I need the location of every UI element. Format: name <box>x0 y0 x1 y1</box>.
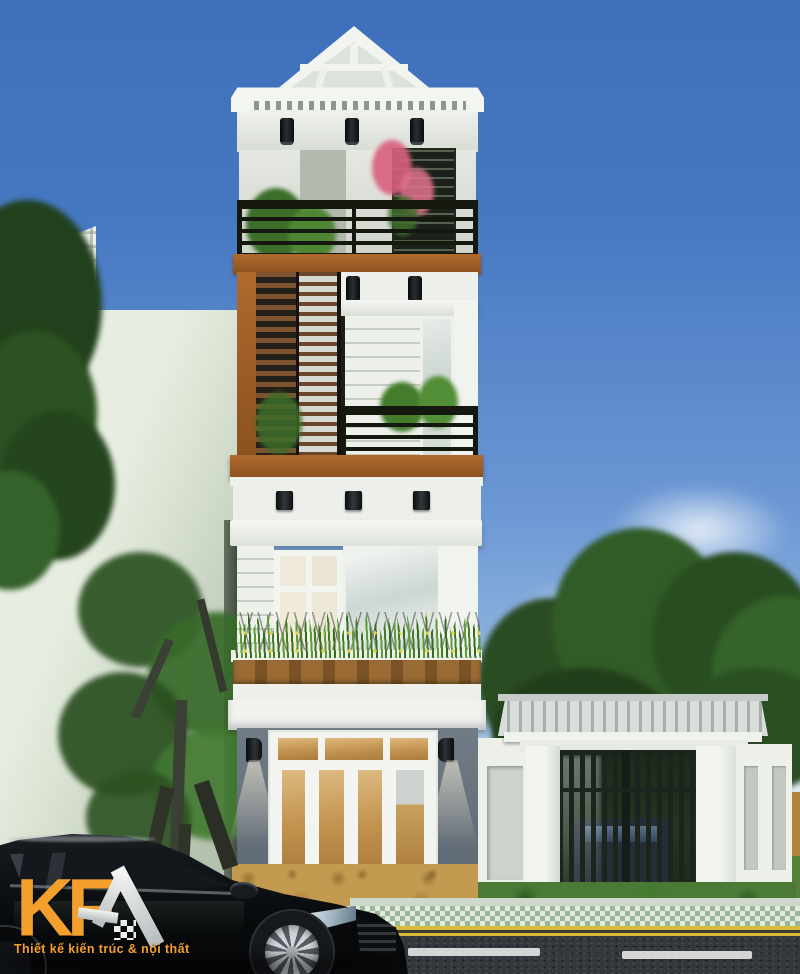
car-side-mirror <box>230 882 258 899</box>
car-roof-highlight <box>8 836 156 842</box>
roof-window-squares <box>114 920 136 940</box>
fence-recessed-panel <box>487 766 523 880</box>
gate-rail <box>558 788 698 792</box>
logo-tagline: Thiết kế kiến trúc & nội thất <box>14 942 190 956</box>
lane-marking-dash <box>408 948 540 956</box>
fence-recessed-panel <box>772 766 786 870</box>
gate-center-stile <box>622 750 630 902</box>
render-canvas: KF Thiết kế kiến trúc & nội thất <box>0 0 800 974</box>
lane-marking-dash <box>622 951 752 959</box>
fence-recessed-panel <box>744 766 758 870</box>
kfa-logo: KF Thiết kế kiến trúc & nội thất <box>12 864 202 964</box>
gate-canopy-ridge <box>498 694 768 701</box>
